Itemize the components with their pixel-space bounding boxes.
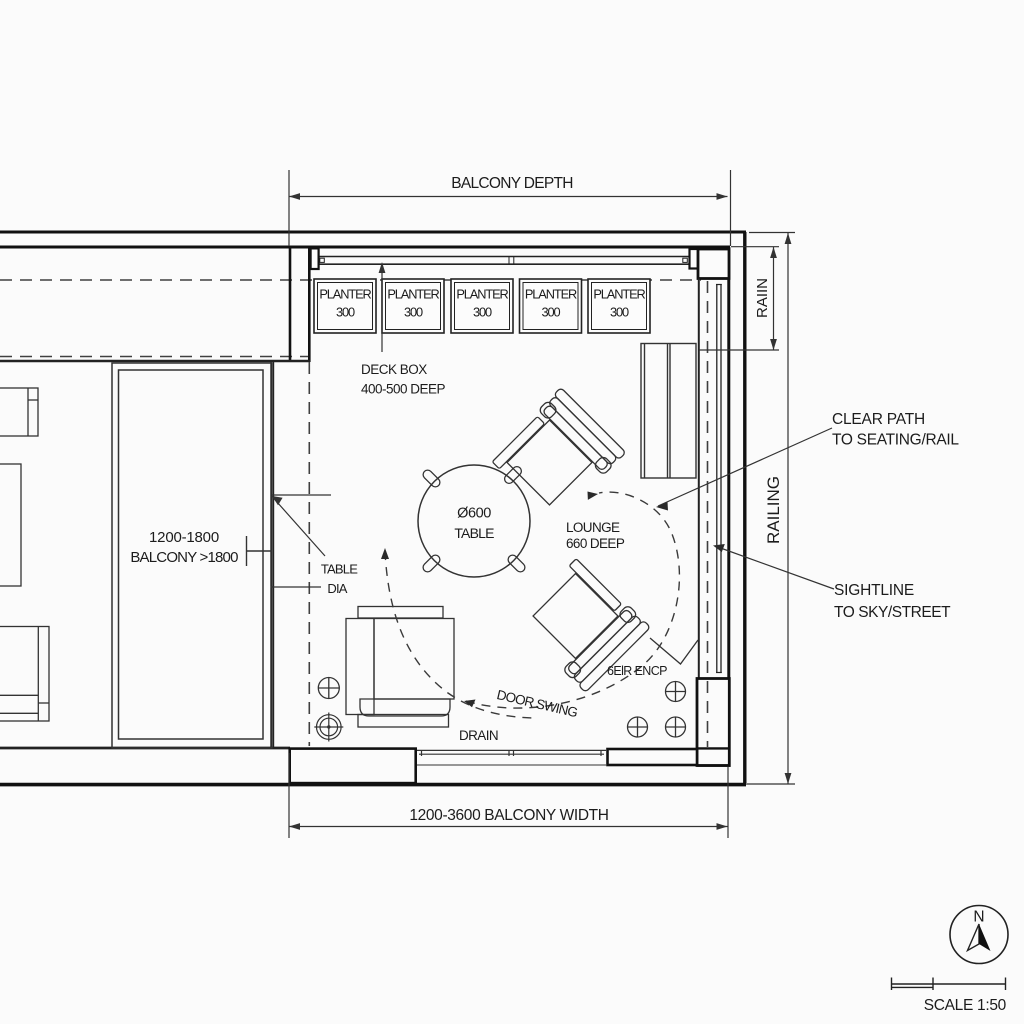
svg-text:TABLE: TABLE [321, 562, 358, 577]
svg-text:PLANTER: PLANTER [319, 287, 371, 302]
svg-text:BALCONY >1800: BALCONY >1800 [130, 549, 238, 566]
svg-text:Ø600: Ø600 [457, 506, 491, 522]
svg-text:SCALE 1:50: SCALE 1:50 [924, 997, 1007, 1014]
svg-text:DECK BOX: DECK BOX [361, 362, 427, 377]
svg-text:300: 300 [336, 305, 355, 320]
svg-text:N: N [973, 909, 984, 926]
svg-text:PLANTER: PLANTER [456, 287, 508, 302]
svg-text:PLANTER: PLANTER [593, 287, 645, 302]
svg-text:SIGHTLINE: SIGHTLINE [834, 582, 914, 599]
svg-text:RAIIN: RAIIN [754, 278, 771, 318]
svg-text:300: 300 [610, 305, 629, 320]
svg-text:PLANTER: PLANTER [525, 287, 577, 302]
svg-text:300: 300 [541, 305, 560, 320]
svg-text:PLANTER: PLANTER [387, 287, 439, 302]
svg-text:400-500 DEEP: 400-500 DEEP [361, 382, 446, 397]
svg-text:660 DEEP: 660 DEEP [566, 536, 625, 551]
svg-text:300: 300 [404, 305, 423, 320]
svg-text:DIA: DIA [327, 581, 347, 596]
svg-text:TABLE: TABLE [454, 525, 494, 541]
svg-text:CLEAR PATH: CLEAR PATH [832, 411, 925, 428]
svg-text:BALCONY DEPTH: BALCONY DEPTH [451, 175, 573, 192]
svg-text:300: 300 [473, 305, 492, 320]
svg-text:1200-1800: 1200-1800 [149, 529, 219, 546]
svg-text:1200-3600 BALCONY WIDTH: 1200-3600 BALCONY WIDTH [409, 807, 608, 824]
svg-text:TO SKY/STREET: TO SKY/STREET [834, 604, 951, 621]
svg-text:6ElR ENCP: 6ElR ENCP [607, 664, 667, 678]
svg-text:TO SEATING/RAIL: TO SEATING/RAIL [832, 432, 959, 449]
svg-text:LOUNGE: LOUNGE [566, 520, 620, 535]
svg-text:DRAIN: DRAIN [459, 728, 498, 743]
svg-text:RAILING: RAILING [764, 476, 783, 544]
